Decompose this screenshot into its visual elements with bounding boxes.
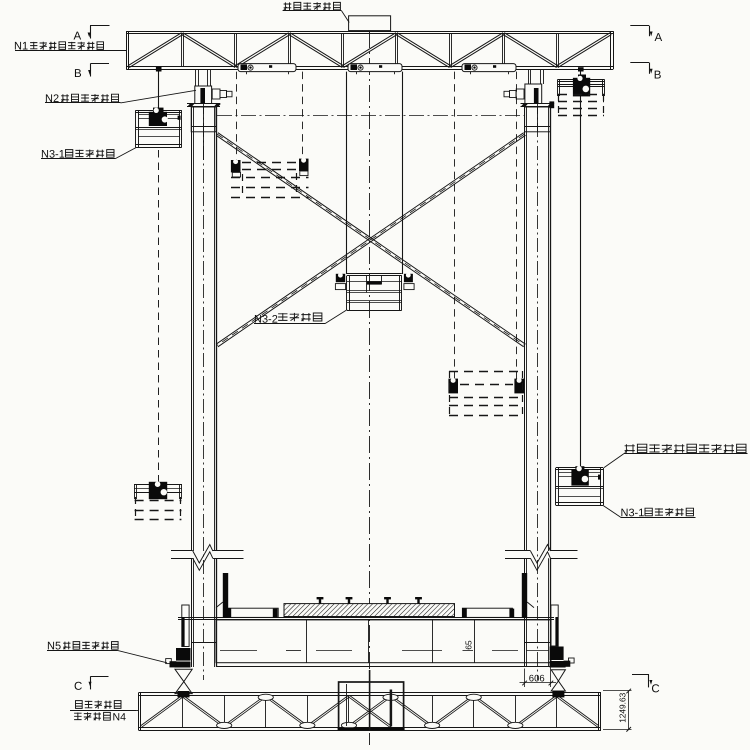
svg-text:N2: N2 [45, 93, 59, 105]
svg-text:N4: N4 [112, 711, 126, 723]
svg-text:65: 65 [464, 640, 474, 650]
svg-text:A: A [73, 31, 81, 43]
svg-text:C: C [74, 681, 82, 693]
svg-text:C: C [651, 683, 659, 695]
svg-text:1249.63: 1249.63 [618, 692, 628, 722]
svg-text:A: A [654, 32, 662, 44]
svg-text:B: B [74, 68, 82, 80]
svg-text:B: B [654, 70, 662, 82]
